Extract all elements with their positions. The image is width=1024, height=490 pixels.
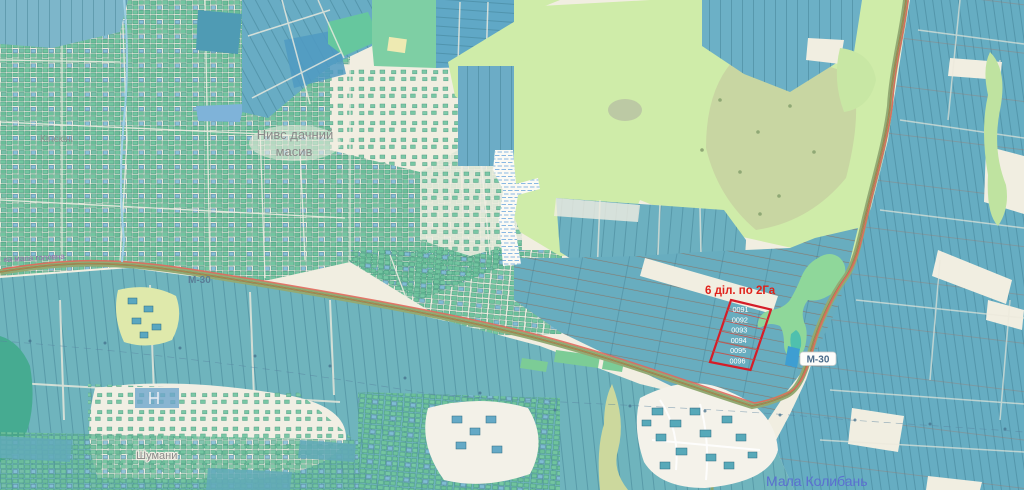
svg-text:0094: 0094 xyxy=(731,336,747,345)
svg-text:масив: масив xyxy=(276,144,313,159)
svg-text:М-30: М-30 xyxy=(807,355,830,366)
svg-text:6 діл. по 2Га: 6 діл. по 2Га xyxy=(705,285,776,297)
svg-text:Кіпєкіні: Кіпєкіні xyxy=(40,134,73,145)
svg-text:0092: 0092 xyxy=(732,315,748,324)
svg-text:0091: 0091 xyxy=(733,305,749,314)
svg-text:0096: 0096 xyxy=(730,357,746,366)
svg-text:М-30: М-30 xyxy=(188,275,211,286)
svg-text:0093: 0093 xyxy=(731,326,747,335)
svg-text:0095: 0095 xyxy=(730,346,746,355)
svg-text:Шумани: Шумани xyxy=(136,450,177,462)
svg-text:Мала Колибань: Мала Колибань xyxy=(766,473,868,489)
svg-text:Нивс дачний: Нивс дачний xyxy=(257,127,334,142)
